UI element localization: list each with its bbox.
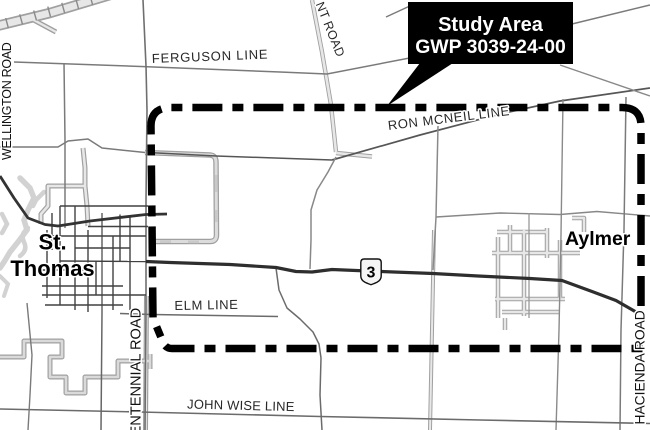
svg-text:JOHN WISE LINE: JOHN WISE LINE <box>187 397 295 415</box>
svg-text:St.: St. <box>38 230 66 255</box>
svg-text:Thomas: Thomas <box>10 256 94 281</box>
svg-text:Study Area: Study Area <box>438 14 544 36</box>
svg-text:HACIENDA ROAD: HACIENDA ROAD <box>633 310 648 424</box>
svg-text:Aylmer: Aylmer <box>565 228 631 250</box>
svg-text:ELM LINE: ELM LINE <box>174 297 238 313</box>
svg-text:CENTENNIAL ROAD: CENTENNIAL ROAD <box>129 308 145 430</box>
svg-text:3: 3 <box>367 265 376 282</box>
svg-text:WELLINGTON ROAD: WELLINGTON ROAD <box>0 42 14 160</box>
svg-text:GWP 3039-24-00: GWP 3039-24-00 <box>415 36 566 58</box>
